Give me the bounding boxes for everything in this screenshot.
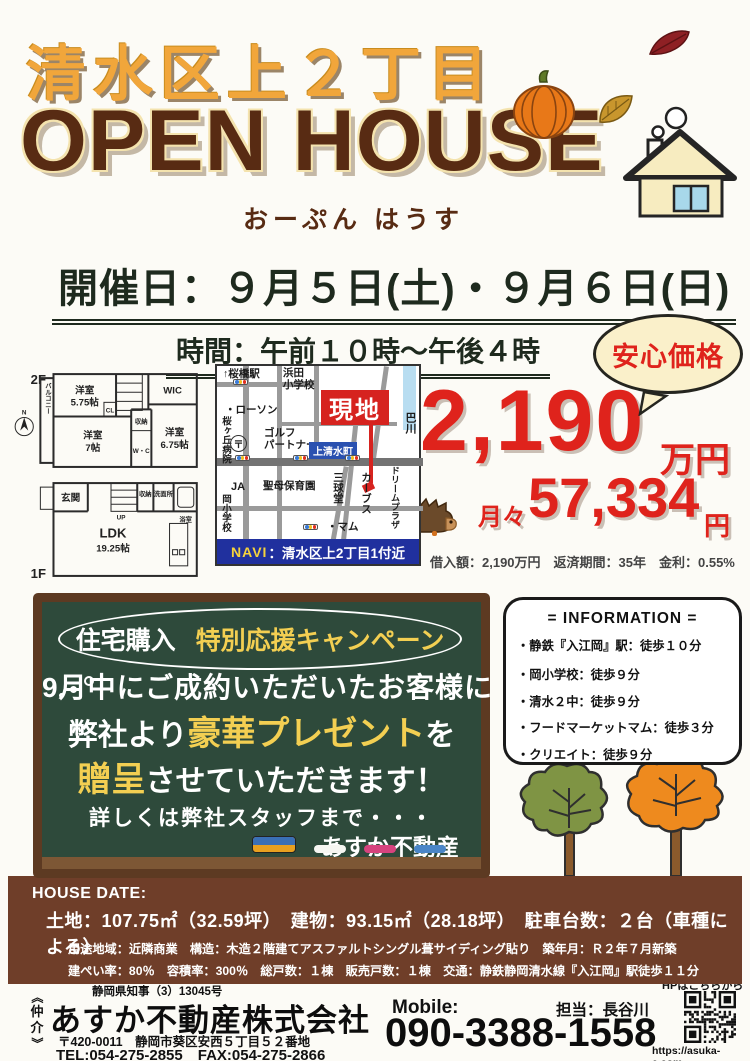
pink-chalk-icon bbox=[364, 845, 396, 853]
map-label-sankyudo: 三球堂 bbox=[331, 472, 346, 504]
information-item: ・フードマーケットマム：徒歩３分 bbox=[517, 718, 714, 736]
broker-char: 仲 bbox=[30, 1004, 43, 1020]
compass-icon: N bbox=[15, 409, 33, 435]
monthly-label: 月々 bbox=[478, 497, 526, 532]
house-data-line2: 用途地域：近隣商業 構造：木造２階建てアスファルトシングル葺サイディング貼り 築… bbox=[68, 939, 677, 957]
price-badge-tail bbox=[636, 390, 672, 416]
room2-1-size: 5.75帖 bbox=[71, 396, 100, 408]
broker-mark: 《 仲 介 》 bbox=[28, 990, 46, 1050]
up-label: UP bbox=[117, 514, 127, 521]
broker-char: 介 bbox=[30, 1020, 43, 1036]
map-label-mam: ・マム bbox=[327, 522, 359, 534]
information-item: ・クリエイト：徒歩９分 bbox=[517, 745, 714, 763]
monthly-unit: 円 bbox=[704, 506, 730, 543]
map-label-dream-plaza: ドリームプラザ bbox=[389, 466, 402, 529]
room2-3-size: 6.75帖 bbox=[160, 439, 189, 451]
information-list: ・静鉄『入江岡』駅：徒歩１０分 ・岡小学校：徒歩９分 ・清水２中：徒歩９分 ・フ… bbox=[517, 636, 714, 771]
navi-text: ：清水区上2丁目1付近 bbox=[268, 542, 405, 562]
campaign-line2-pre: 弊社より bbox=[68, 710, 187, 754]
campaign-line3: 贈呈 させていただきます！ bbox=[42, 752, 481, 801]
house-icon bbox=[618, 106, 746, 218]
information-item: ・清水２中：徒歩９分 bbox=[517, 692, 714, 710]
balcony-label: バルコニー bbox=[44, 382, 51, 414]
campaign-blackboard: 住宅購入 特別応援キャンペーン 9月中にご成約いただいたお客様に 弊社より 豪華… bbox=[33, 593, 490, 878]
event-date: 開催日：９月５日(土)・９月６日(日) bbox=[52, 256, 736, 325]
website-url: https://asuka-e.com bbox=[652, 1045, 750, 1061]
broker-bracket-close: 》 bbox=[30, 1037, 44, 1049]
map-road bbox=[277, 366, 282, 543]
furigana-subtitle: おーぷん はうす bbox=[243, 200, 464, 236]
wc-label: W・C bbox=[133, 448, 150, 455]
house-data-line3: 建ぺい率：80％ 容積率：300％ 総戸数：１棟 販売戸数：１棟 交通：静鉄静岡… bbox=[68, 961, 699, 979]
floor1-label: 1F bbox=[31, 566, 46, 581]
qr-code-svg bbox=[684, 991, 736, 1043]
room2-2-size: 7帖 bbox=[85, 442, 100, 454]
contact-person: 担当：長谷川 bbox=[556, 998, 649, 1020]
ldk-label: LDK bbox=[100, 526, 127, 541]
campaign-line1: 9月中にご成約いただいたお客様に bbox=[42, 666, 481, 706]
information-box: = INFORMATION = ・静鉄『入江岡』駅：徒歩１０分 ・岡小学校：徒歩… bbox=[503, 597, 742, 765]
genkan-label: 玄関 bbox=[61, 492, 80, 504]
post-office-icon: 〒 bbox=[230, 435, 247, 452]
campaign-line2-post: を bbox=[425, 710, 455, 754]
campaign-bubble-right: 特別応援キャンペーン bbox=[196, 621, 445, 657]
campaign-bubble: 住宅購入 特別応援キャンペーン bbox=[58, 608, 462, 670]
site-location-box: 現地 bbox=[321, 390, 389, 425]
map-label-seibo: 聖母保育園 bbox=[263, 481, 316, 493]
campaign-line3-post: させていただきます！ bbox=[146, 756, 446, 800]
map-label-curves: カーブス bbox=[359, 472, 374, 514]
white-chalk-icon bbox=[314, 845, 346, 853]
navi-label: NAVI bbox=[231, 544, 267, 560]
monthly-amount: 57,334 bbox=[528, 470, 699, 526]
access-map: ↑桜橋駅 浜田 小学校 ・ローソン 桜ヶ丘病院 〒 ゴルフ パートナー 上清水町… bbox=[215, 364, 421, 566]
campaign-bubble-left: 住宅購入 bbox=[76, 621, 176, 657]
traffic-signal-icon bbox=[233, 379, 248, 385]
map-label-hamada-school: 浜田 小学校 bbox=[283, 368, 315, 392]
traffic-signal-icon bbox=[235, 455, 250, 461]
map-label-river: 巴川 bbox=[402, 412, 418, 434]
house-data-band: HOUSE DATE: 土地：107.75㎡（32.59坪） 建物：93.15㎡… bbox=[8, 876, 742, 984]
room2-3-label: 洋室 bbox=[165, 427, 185, 439]
floor-plan: 2F N バルコニー CL 洋室 5.75帖 WIC 洋室 7帖 収納 W・C … bbox=[10, 364, 210, 584]
blackboard-tray bbox=[42, 857, 481, 869]
svg-text:N: N bbox=[22, 409, 27, 416]
traffic-signal-icon bbox=[293, 455, 308, 461]
ldk-size: 19.25帖 bbox=[96, 543, 130, 555]
information-title: = INFORMATION = bbox=[506, 610, 739, 628]
pumpkin-icon bbox=[502, 68, 586, 142]
price-amount: 2,190 bbox=[420, 378, 645, 464]
red-leaf-icon bbox=[646, 26, 692, 60]
room2-2-label: 洋室 bbox=[83, 430, 103, 442]
map-label-lawson: ・ローソン bbox=[225, 405, 278, 417]
wash-label: 洗面所 bbox=[154, 489, 174, 498]
traffic-signal-icon bbox=[345, 455, 360, 461]
autumn-trees-icon bbox=[503, 758, 745, 876]
storage2-label: 収納 bbox=[135, 417, 148, 426]
closet-label: CL bbox=[106, 407, 115, 414]
map-label-oka-school: 岡小学校 bbox=[218, 494, 232, 532]
flyer-page: 清水区上２丁目 OPEN HOUSE おーぷん はうす 開催日：９月５日(土)・… bbox=[0, 0, 750, 1061]
tel-fax: TEL:054-275-2855 FAX:054-275-2866 bbox=[56, 1044, 325, 1061]
loan-terms: 借入額：2,190万円 返済期間：35年 金利：0.55% bbox=[430, 552, 735, 571]
traffic-signal-icon bbox=[303, 524, 318, 530]
navi-bar: NAVI：清水区上2丁目1付近 bbox=[217, 539, 419, 564]
broker-bracket-open: 《 bbox=[30, 991, 44, 1003]
price-badge-text: 安心価格 bbox=[612, 335, 724, 374]
house-data-title: HOUSE DATE: bbox=[32, 885, 147, 903]
information-item: ・岡小学校：徒歩９分 bbox=[517, 665, 714, 683]
campaign-line2-em: 豪華プレゼント bbox=[187, 706, 425, 755]
information-item: ・静鉄『入江岡』駅：徒歩１０分 bbox=[517, 636, 714, 654]
campaign-line3-em: 贈呈 bbox=[78, 752, 146, 801]
blue-chalk-icon bbox=[414, 845, 446, 853]
map-label-ja: JA bbox=[231, 481, 245, 493]
bath-label: 浴室 bbox=[179, 514, 192, 523]
chalk-eraser-icon bbox=[252, 836, 296, 853]
price-badge-bubble: 安心価格 bbox=[593, 314, 743, 394]
storage1-label: 収納 bbox=[139, 489, 152, 498]
campaign-line2: 弊社より 豪華プレゼント を bbox=[42, 706, 481, 755]
wic-label: WIC bbox=[163, 385, 182, 396]
room2-1-label: 洋室 bbox=[75, 384, 95, 396]
